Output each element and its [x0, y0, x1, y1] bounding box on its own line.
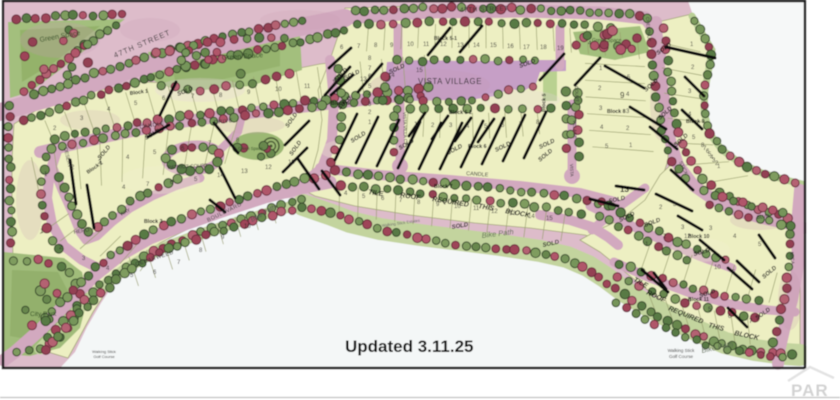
svg-text:Golf Course: Golf Course	[93, 354, 115, 359]
svg-text:12: 12	[684, 234, 691, 240]
svg-text:16: 16	[507, 44, 514, 50]
svg-text:Updated 3.11.25: Updated 3.11.25	[345, 337, 474, 356]
svg-text:14: 14	[388, 73, 395, 79]
svg-text:10: 10	[244, 224, 251, 230]
svg-text:18: 18	[540, 45, 547, 51]
svg-text:10: 10	[714, 265, 721, 271]
svg-text:9: 9	[620, 91, 625, 100]
svg-text:12: 12	[491, 209, 498, 215]
svg-text:13: 13	[620, 185, 629, 194]
svg-text:Block 8: Block 8	[607, 109, 626, 115]
svg-text:Block 5-2: Block 5-2	[449, 110, 472, 116]
svg-text:PAR: PAR	[791, 381, 829, 400]
svg-text:11: 11	[304, 84, 311, 90]
svg-text:11: 11	[473, 206, 480, 212]
svg-text:15: 15	[416, 68, 423, 74]
svg-text:13: 13	[457, 43, 464, 49]
svg-text:Green Space: Green Space	[238, 146, 263, 151]
svg-text:VISTA VILLAGE: VISTA VILLAGE	[418, 77, 482, 86]
svg-text:14: 14	[217, 173, 224, 179]
svg-text:17: 17	[523, 45, 530, 51]
svg-text:13: 13	[509, 211, 516, 217]
svg-text:Block 4: Block 4	[331, 101, 350, 107]
svg-text:12: 12	[440, 42, 447, 48]
svg-text:12: 12	[265, 165, 272, 171]
svg-text:Block 6: Block 6	[468, 144, 487, 150]
svg-text:14: 14	[473, 43, 480, 49]
svg-text:10: 10	[288, 160, 295, 166]
svg-text:12: 12	[332, 80, 339, 86]
svg-text:City Park: City Park	[30, 311, 57, 318]
svg-text:10: 10	[454, 204, 461, 210]
svg-text:15: 15	[490, 43, 497, 49]
svg-text:13: 13	[360, 77, 367, 83]
svg-text:Green Space: Green Space	[592, 38, 622, 44]
svg-text:10: 10	[407, 42, 414, 48]
svg-text:Block 9: Block 9	[686, 119, 705, 125]
svg-text:14: 14	[528, 214, 535, 220]
svg-text:MICA: MICA	[788, 252, 795, 266]
svg-text:Golf Course: Golf Course	[669, 354, 694, 359]
svg-text:VISTA: VISTA	[569, 164, 574, 177]
svg-text:COURT: COURT	[574, 86, 580, 102]
svg-text:19: 19	[557, 46, 564, 52]
svg-text:11: 11	[423, 42, 430, 48]
svg-text:Block 5: Block 5	[541, 93, 548, 112]
svg-text:Block 10: Block 10	[688, 234, 709, 240]
svg-text:Block 3: Block 3	[144, 219, 163, 225]
svg-text:Walking Stick: Walking Stick	[668, 348, 696, 353]
svg-text:13: 13	[241, 169, 248, 175]
svg-text:10: 10	[275, 87, 282, 93]
svg-text:VILLAGE: VILLAGE	[572, 120, 578, 139]
svg-text:15: 15	[546, 216, 553, 222]
svg-text:Block 7: Block 7	[434, 184, 453, 190]
